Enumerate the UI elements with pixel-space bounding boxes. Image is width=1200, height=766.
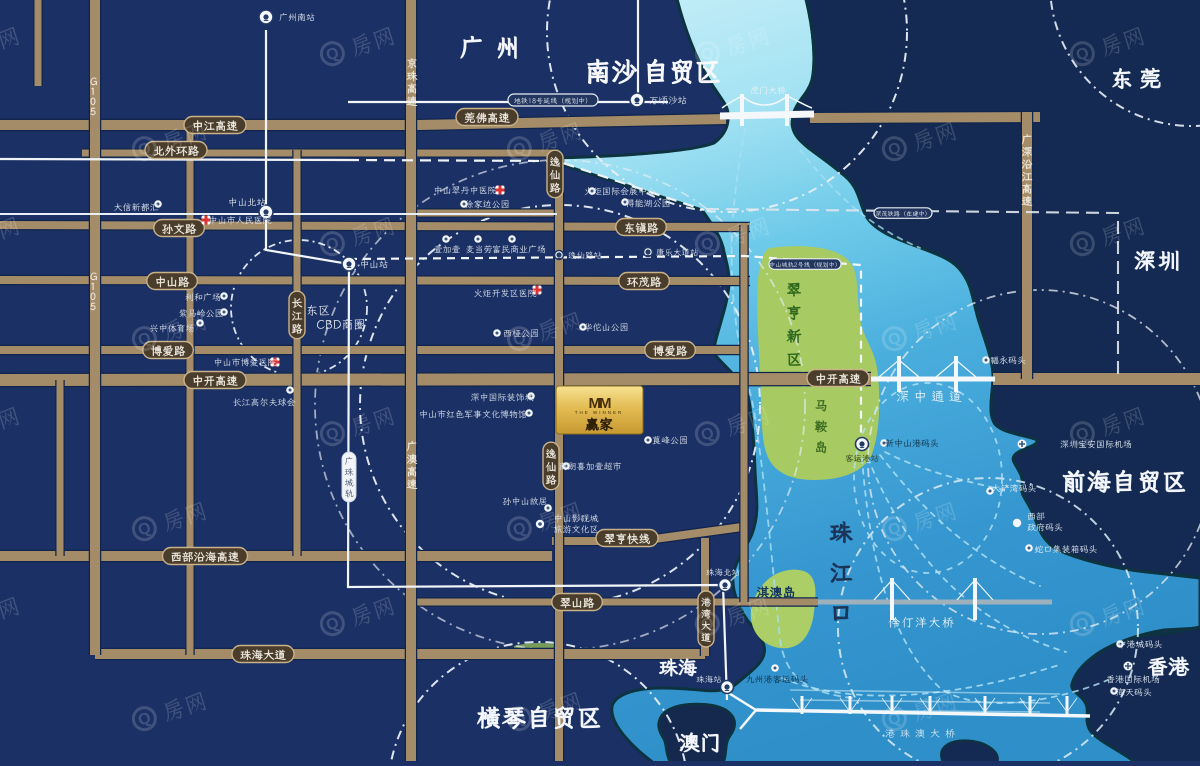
svg-text:THE WINNER: THE WINNER	[575, 410, 624, 415]
